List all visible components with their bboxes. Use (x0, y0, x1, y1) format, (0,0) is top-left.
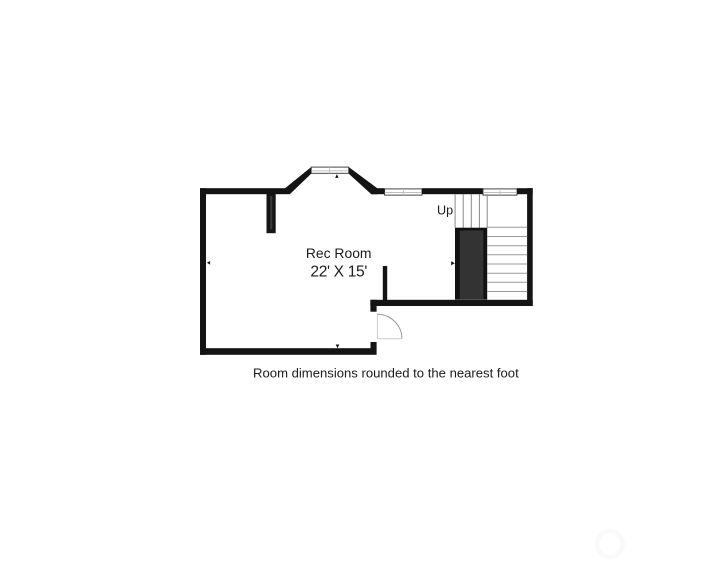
svg-text:22' X 15': 22' X 15' (310, 263, 367, 280)
svg-text:Up: Up (437, 204, 453, 218)
svg-text:Rec Room: Rec Room (306, 245, 372, 261)
svg-text:Room dimensions rounded to the: Room dimensions rounded to the nearest f… (253, 365, 519, 380)
